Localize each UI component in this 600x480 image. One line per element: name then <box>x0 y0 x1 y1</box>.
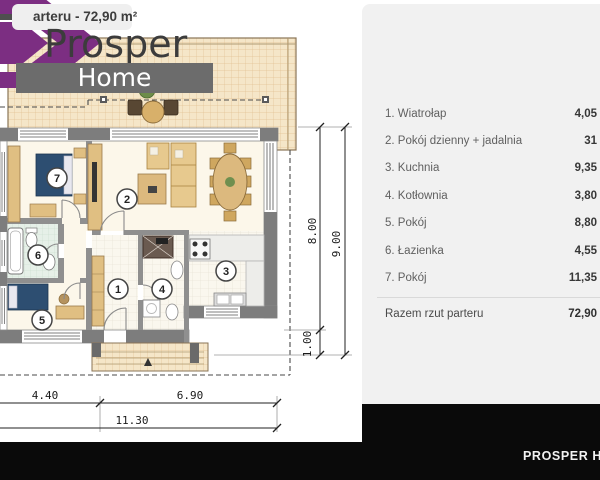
kitchen-counter-side <box>246 261 264 306</box>
throw-pillow <box>150 147 158 155</box>
room-label-5: 5 <box>32 310 52 330</box>
room-label: 5. Pokój <box>385 217 427 229</box>
outdoor-chair <box>128 100 142 115</box>
nightstand <box>74 148 86 158</box>
room-label-7: 7 <box>47 168 67 188</box>
outdoor-table <box>142 101 164 123</box>
room-list-item: 5. Pokój 8,80 <box>362 210 600 237</box>
room-list-item: 4. Kotłownia 3,80 <box>362 182 600 209</box>
svg-text:2: 2 <box>124 194 130 206</box>
dim-bottom-right: 6.90 <box>177 389 204 402</box>
room-list-item: 7. Pokój 11,35 <box>362 264 600 291</box>
room-area: 31 <box>584 135 597 147</box>
outdoor-chair <box>164 100 178 115</box>
room-list-panel: 1. Wiatrołap 4,05 2. Pokój dzienny + jad… <box>362 4 600 404</box>
watermark-sub: Home <box>78 63 152 92</box>
dim-side-inner: 8.00 <box>306 218 319 245</box>
dresser <box>30 204 56 217</box>
room-area: 4,55 <box>575 245 597 257</box>
svg-text:7: 7 <box>54 173 60 185</box>
wardrobe <box>8 146 20 222</box>
hall-wardrobe <box>92 256 104 326</box>
dim-bottom-total: 11.30 <box>115 414 148 427</box>
total-row: Razem rzut parteru 72,90 <box>362 298 600 330</box>
watermark-home-bar: Home <box>16 63 213 93</box>
toilet <box>166 304 178 320</box>
svg-text:6: 6 <box>35 250 41 262</box>
laptop <box>148 186 157 193</box>
svg-text:5: 5 <box>39 315 45 327</box>
room-list-item: 2. Pokój dzienny + jadalnia 31 <box>362 127 600 154</box>
room-label-3: 3 <box>216 261 236 281</box>
room-label: 6. Łazienka <box>385 245 444 257</box>
footer-bar-bottom <box>0 442 600 480</box>
room-label: 1. Wiatrołap <box>385 108 446 120</box>
footer-brand-text: PROSPER HOME <box>523 449 600 463</box>
utility-sink <box>171 261 183 279</box>
room-label-2: 2 <box>117 189 137 209</box>
total-area: 72,90 <box>568 308 597 320</box>
centerpiece-plant <box>225 177 235 187</box>
room-label: 4. Kotłownia <box>385 190 448 202</box>
room-list-item: 3. Kuchnia 9,35 <box>362 155 600 182</box>
room-label-4: 4 <box>152 279 172 299</box>
total-label: Razem rzut parteru <box>385 308 483 320</box>
watermark-brand: Prosper <box>44 22 187 66</box>
room-label: 2. Pokój dzienny + jadalnia <box>385 135 522 147</box>
dim-bottom-left: 4.40 <box>32 389 59 402</box>
room-label: 7. Pokój <box>385 272 427 284</box>
washing-machine <box>143 300 160 317</box>
room-label: 3. Kuchnia <box>385 162 439 174</box>
dim-side-total: 9.00 <box>330 231 343 258</box>
room-area: 3,80 <box>575 190 597 202</box>
room-area: 4,05 <box>575 108 597 120</box>
throw-pillow <box>175 150 183 158</box>
room-list-item: 1. Wiatrołap 4,05 <box>362 100 600 127</box>
room-label-1: 1 <box>108 279 128 299</box>
tv <box>92 162 97 202</box>
room-area: 8,80 <box>575 217 597 229</box>
room-area: 9,35 <box>575 162 597 174</box>
room-label-6: 6 <box>28 245 48 265</box>
stove <box>190 239 210 259</box>
room-list: 1. Wiatrołap 4,05 2. Pokój dzienny + jad… <box>362 100 600 292</box>
svg-text:3: 3 <box>223 266 229 278</box>
svg-text:4: 4 <box>159 284 166 296</box>
desk <box>56 306 84 319</box>
room-area: 11,35 <box>569 272 597 284</box>
svg-text:1: 1 <box>115 284 121 296</box>
entrance-porch <box>92 343 208 371</box>
nightstand <box>74 194 86 204</box>
pillows <box>9 286 17 308</box>
dim-porch-depth: 1.00 <box>301 331 314 358</box>
page: 7 2 3 4 1 6 5 8.00 1.00 9.00 4.40 <box>0 0 600 480</box>
room-list-item: 6. Łazienka 4,55 <box>362 237 600 264</box>
